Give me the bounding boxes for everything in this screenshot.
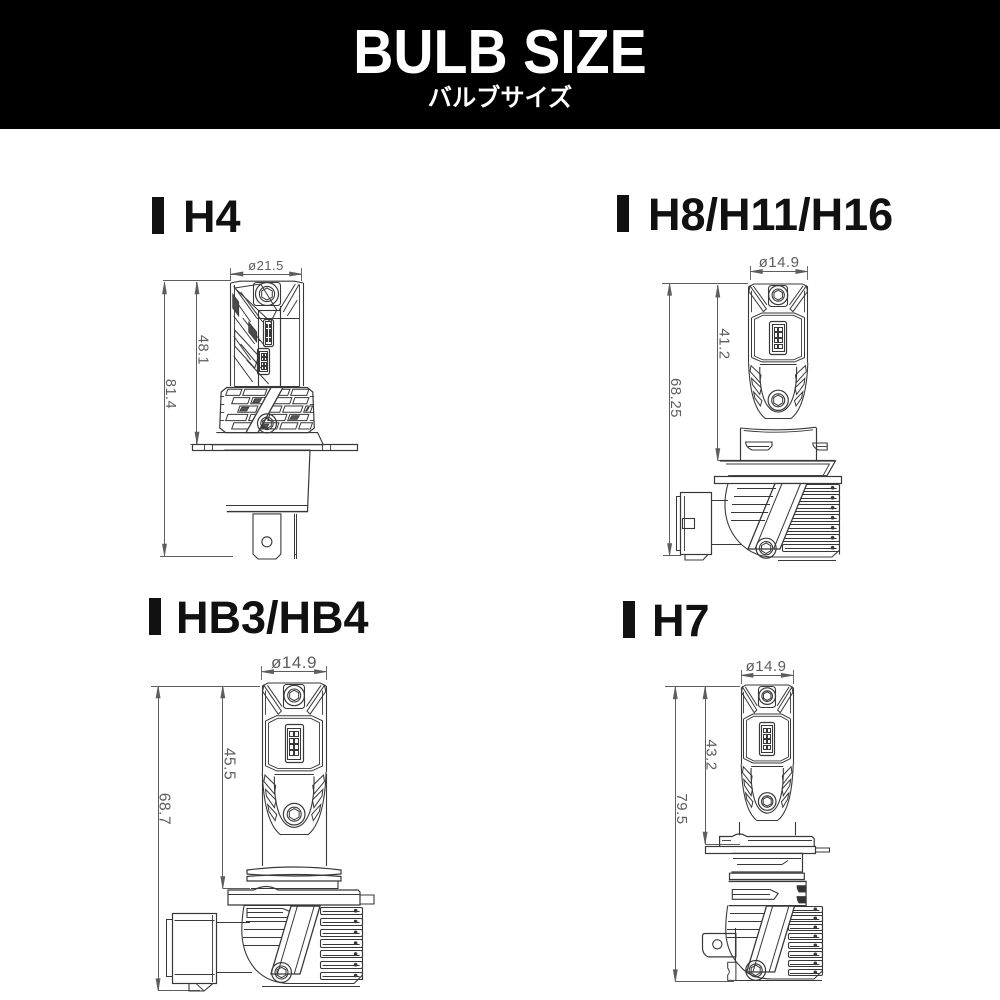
svg-text:45.5: 45.5 [220,748,237,780]
svg-text:ø21.5: ø21.5 [248,258,284,273]
svg-text:41.2: 41.2 [715,328,732,359]
svg-text:81.4: 81.4 [162,379,178,409]
svg-text:48.1: 48.1 [195,335,211,365]
svg-text:ø14.9: ø14.9 [271,653,317,672]
svg-text:68.7: 68.7 [156,793,173,825]
svg-text:79.5: 79.5 [673,793,690,824]
svg-text:43.2: 43.2 [703,739,720,770]
svg-text:ø14.9: ø14.9 [746,658,787,675]
svg-text:68.25: 68.25 [667,378,684,418]
svg-text:ø14.9: ø14.9 [759,254,800,271]
